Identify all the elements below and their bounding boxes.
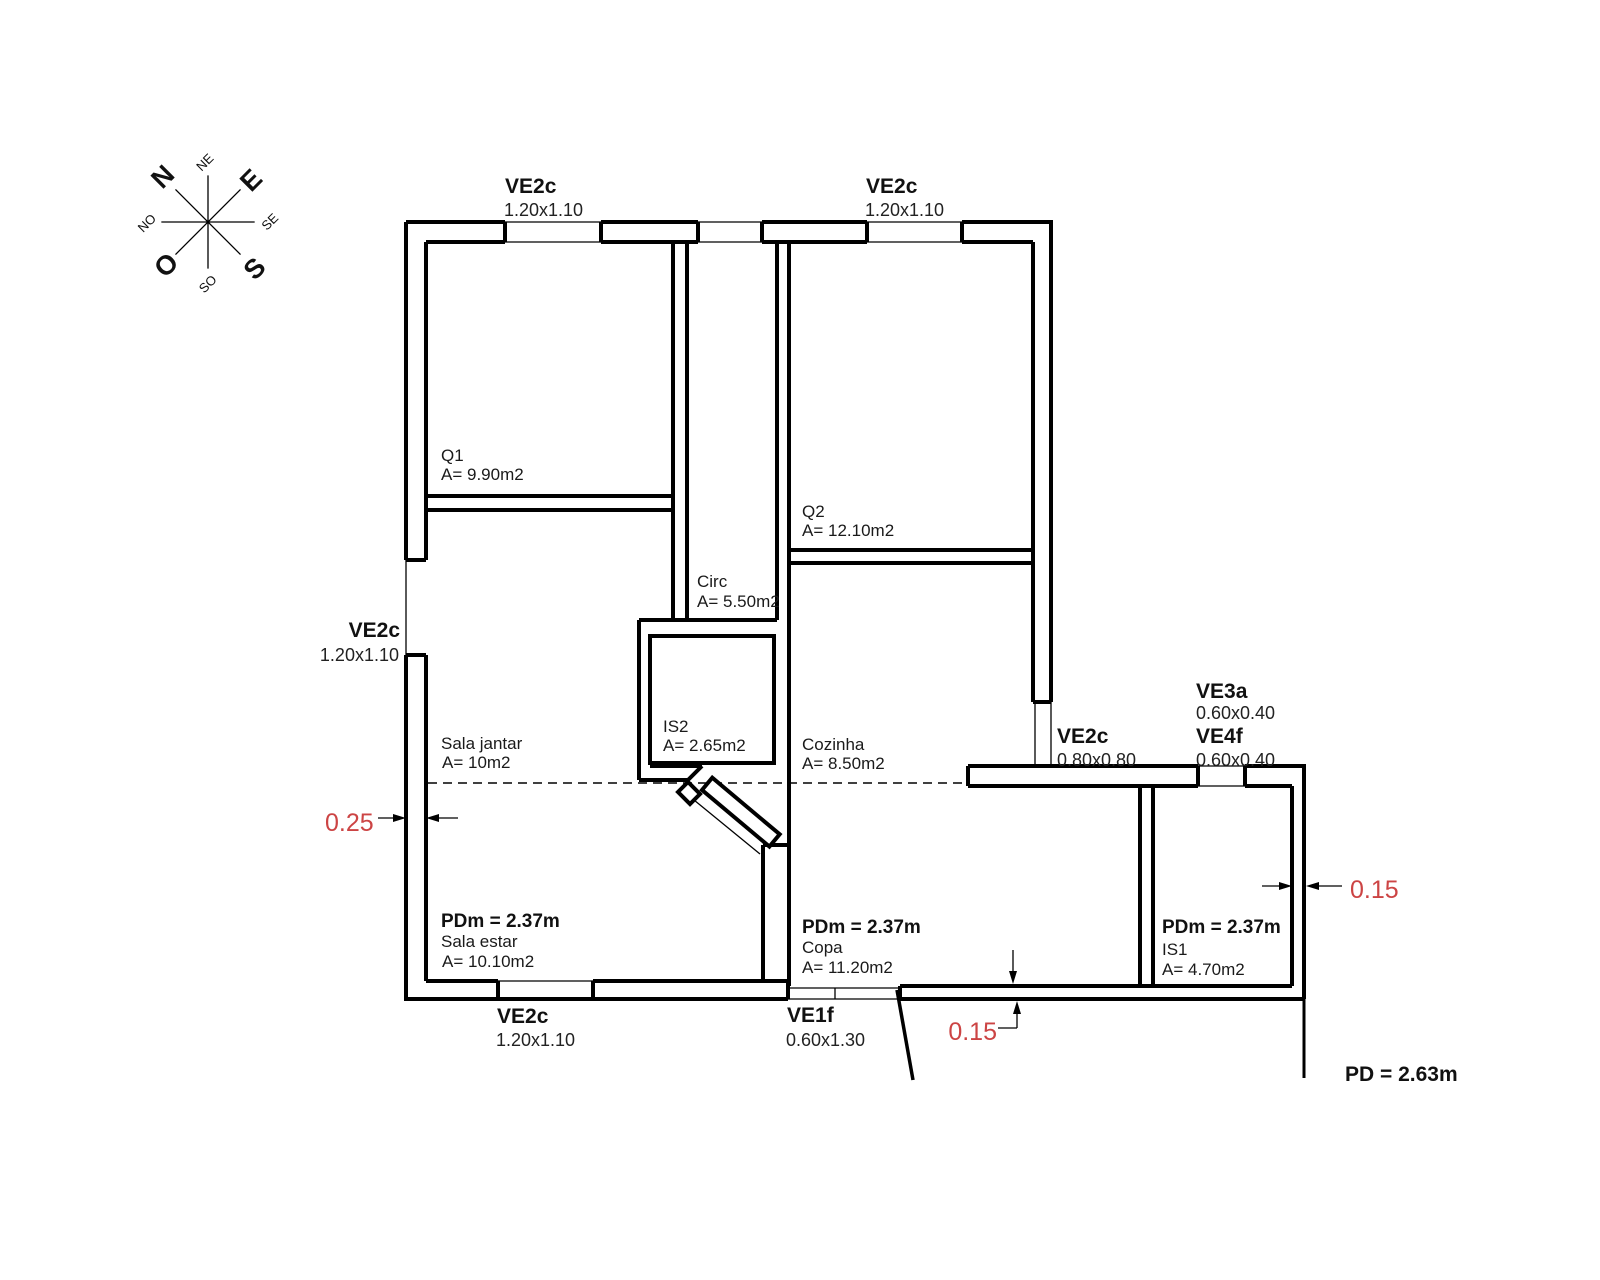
compass-southwest-label: SO [196, 272, 220, 296]
window-bottom-label: VE2c [497, 1005, 549, 1028]
room-copa-name: Copa [802, 938, 843, 957]
window-bottom-size: 1.20x1.10 [496, 1030, 575, 1050]
window-top-right-label: VE2c [866, 175, 918, 198]
exterior-wall-outer [406, 222, 1304, 999]
dimension-left-wall: 0.25 [325, 809, 458, 837]
floor-plan-page: 0.25 0.15 0.15 VE2c 1.20x1.10 VE2c 1.20x… [0, 0, 1600, 1280]
wall-end-caps [406, 222, 1245, 999]
door-entry-size: 0.60x1.30 [786, 1030, 865, 1050]
exterior-walls [406, 222, 1304, 999]
room-q2-name: Q2 [802, 502, 825, 521]
room-is1-ceiling: PDm = 2.37m [1162, 917, 1281, 938]
dimension-bottom-leader [998, 950, 1017, 1028]
room-q1-area: A= 9.90m2 [441, 465, 524, 484]
window-glass-lines [406, 222, 1245, 999]
window-ve3a-label: VE3a [1196, 680, 1248, 703]
entry-door-leaf [897, 990, 913, 1080]
compass-northwest-label: NO [135, 211, 159, 235]
room-is2-area: A= 2.65m2 [663, 736, 746, 755]
door-jamb-block [678, 782, 700, 804]
dimension-bottom-arrowheads [1009, 971, 1021, 1014]
room-copa-ceiling: PDm = 2.37m [802, 917, 921, 938]
room-sala-estar-area: A= 10.10m2 [442, 952, 534, 971]
room-circ-name: Circ [697, 572, 728, 591]
dimension-right-arrowheads [1279, 882, 1319, 890]
ceiling-height-note: PD = 2.63m [1345, 1063, 1458, 1086]
room-copa-area: A= 11.20m2 [802, 958, 893, 977]
door-entry-label: VE1f [787, 1004, 835, 1027]
window-left-label: VE2c [349, 619, 401, 642]
compass-west-label: O [148, 247, 184, 283]
room-q1-name: Q1 [441, 446, 464, 465]
compass-northeast-label: NE [193, 150, 217, 174]
compass-east-label: E [234, 163, 268, 197]
room-sala-estar-name: Sala estar [441, 932, 518, 951]
circ-opening-glass [698, 222, 762, 242]
window-ve4f-label: VE4f [1196, 725, 1244, 748]
window-top-left-glass [505, 222, 601, 242]
room-sala-estar-ceiling: PDm = 2.37m [441, 911, 560, 932]
window-top-right-glass [867, 222, 962, 242]
compass-rose: N E S O NE SE SO NO [102, 117, 314, 329]
door-ve1f-frame [788, 988, 900, 999]
room-sala-jantar-area: A= 10m2 [442, 753, 511, 772]
window-kitchen-label: VE2c [1057, 725, 1109, 748]
room-sala-jantar-name: Sala jantar [441, 734, 523, 753]
window-bottom-glass [498, 981, 593, 999]
dimension-bottom-wall-value: 0.15 [948, 1018, 997, 1046]
window-left-size: 1.20x1.10 [320, 645, 399, 665]
dimension-left-wall-value: 0.25 [325, 809, 374, 837]
room-cozinha-name: Cozinha [802, 735, 865, 754]
dimension-right-wall-value: 0.15 [1350, 876, 1399, 904]
compass-north-label: N [145, 159, 180, 194]
room-is1-area: A= 4.70m2 [1162, 960, 1245, 979]
interior-door [678, 778, 780, 854]
room-is2-name: IS2 [663, 717, 689, 736]
room-is1-name: IS1 [1162, 940, 1188, 959]
compass-southeast-label: SE [258, 210, 281, 233]
window-ve4f-size: 0.60x0.40 [1196, 750, 1275, 770]
window-kitchen-glass [1035, 702, 1051, 765]
window-top-left-label: VE2c [505, 175, 557, 198]
room-circ-area: A= 5.50m2 [697, 592, 780, 611]
window-ve3a-size: 0.60x0.40 [1196, 703, 1275, 723]
window-top-left-size: 1.20x1.10 [504, 200, 583, 220]
window-top-right-size: 1.20x1.10 [865, 200, 944, 220]
window-kitchen-size: 0.80x0.80 [1057, 750, 1136, 770]
floor-plan-canvas: 0.25 0.15 0.15 VE2c 1.20x1.10 VE2c 1.20x… [0, 0, 1600, 1280]
compass-south-label: S [238, 252, 272, 286]
interior-walls [426, 242, 1292, 986]
room-cozinha-area: A= 8.50m2 [802, 754, 885, 773]
dimension-left-arrowheads [393, 814, 439, 822]
dimension-right-wall: 0.15 [1262, 876, 1399, 904]
door-leaf [702, 778, 780, 847]
interior-wall-lines [426, 242, 1292, 986]
room-q2-area: A= 12.10m2 [802, 521, 894, 540]
